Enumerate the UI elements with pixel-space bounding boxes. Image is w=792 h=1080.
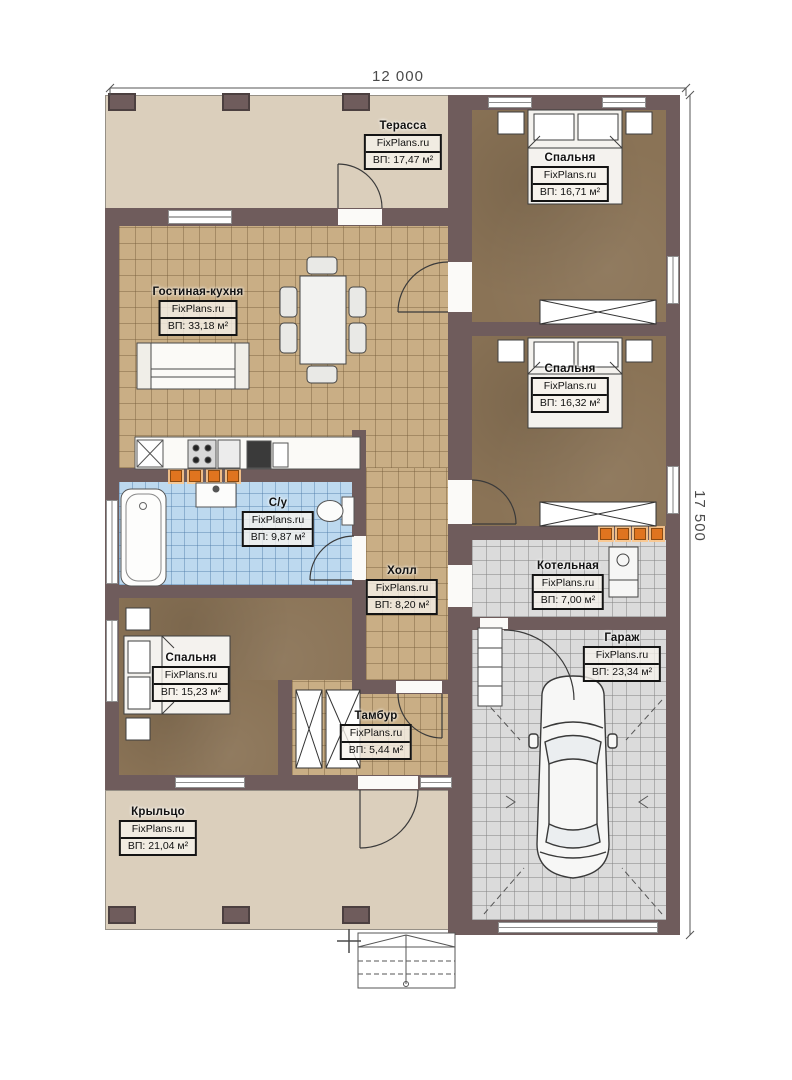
room-area: ВП: 16,71 м²: [533, 185, 607, 200]
watermark-label: FixPlans.ru: [533, 379, 607, 396]
vent-block: [600, 528, 612, 540]
door-opening: [396, 681, 442, 693]
bathroom-floor: [119, 482, 352, 585]
room-label-tambour: Тамбур FixPlans.ru ВП: 5,44 м²: [340, 710, 412, 760]
dimension-height-label: 17 500: [691, 490, 708, 542]
watermark-label: FixPlans.ru: [368, 581, 436, 598]
watermark-label: FixPlans.ru: [342, 726, 410, 743]
room-label-living: Гостиная-кухня FixPlans.ru ВП: 33,18 м²: [153, 286, 244, 336]
wall: [105, 585, 360, 598]
window: [420, 777, 452, 788]
room-area: ВП: 21,04 м²: [121, 839, 195, 854]
room-area: ВП: 23,34 м²: [585, 665, 659, 680]
room-name: Терасса: [364, 120, 442, 132]
room-label-bathroom: С/у FixPlans.ru ВП: 9,87 м²: [242, 497, 314, 547]
room-name: Гараж: [583, 632, 661, 644]
room-name: Холл: [366, 565, 438, 577]
bedroom1-floor: [472, 110, 666, 322]
window: [488, 97, 532, 108]
survey-cross: [337, 929, 361, 953]
room-label-hall: Холл FixPlans.ru ВП: 8,20 м²: [366, 565, 438, 615]
window: [106, 620, 118, 702]
room-area: ВП: 8,20 м²: [368, 598, 436, 613]
door-opening: [480, 618, 508, 629]
room-area: ВП: 17,47 м²: [366, 153, 440, 168]
vent-block: [208, 470, 220, 482]
room-label-bedroom2: Спальня FixPlans.ru ВП: 16,32 м²: [531, 363, 609, 413]
column: [108, 906, 136, 924]
room-name: С/у: [242, 497, 314, 509]
watermark-label: FixPlans.ru: [585, 648, 659, 665]
vent-block: [651, 528, 663, 540]
room-label-porch: Крыльцо FixPlans.ru ВП: 21,04 м²: [119, 806, 197, 856]
vent-block: [634, 528, 646, 540]
dimension-width-label: 12 000: [372, 68, 424, 85]
room-name: Котельная: [532, 560, 604, 572]
room-label-boiler: Котельная FixPlans.ru ВП: 7,00 м²: [532, 560, 604, 610]
room-name: Спальня: [152, 652, 230, 664]
room-area: ВП: 33,18 м²: [161, 319, 235, 334]
room-label-bedroom3: Спальня FixPlans.ru ВП: 15,23 м²: [152, 652, 230, 702]
wall: [666, 95, 680, 935]
wall: [352, 430, 366, 482]
room-name: Тамбур: [340, 710, 412, 722]
room-name: Спальня: [531, 152, 609, 164]
column: [222, 93, 250, 111]
watermark-label: FixPlans.ru: [121, 822, 195, 839]
window: [106, 500, 118, 584]
watermark-label: FixPlans.ru: [366, 136, 440, 153]
wall: [105, 208, 460, 226]
room-area: ВП: 16,32 м²: [533, 396, 607, 411]
column: [222, 906, 250, 924]
window: [667, 256, 679, 304]
wall: [119, 468, 366, 482]
vent-block: [189, 470, 201, 482]
room-label-bedroom1: Спальня FixPlans.ru ВП: 16,71 м²: [531, 152, 609, 202]
wall: [278, 680, 292, 778]
door-opening: [448, 262, 472, 312]
room-area: ВП: 15,23 м²: [154, 685, 228, 700]
watermark-label: FixPlans.ru: [244, 513, 312, 530]
watermark-label: FixPlans.ru: [161, 302, 235, 319]
vent-block: [617, 528, 629, 540]
door-opening: [358, 776, 418, 789]
vent-block: [227, 470, 239, 482]
garage-gate: [498, 922, 658, 933]
column: [108, 93, 136, 111]
wall: [105, 208, 119, 790]
watermark-label: FixPlans.ru: [534, 576, 602, 593]
window: [175, 777, 245, 788]
window: [667, 466, 679, 514]
room-label-garage: Гараж FixPlans.ru ВП: 23,34 м²: [583, 632, 661, 682]
living-floor: [119, 226, 448, 468]
room-area: ВП: 5,44 м²: [342, 743, 410, 758]
door-opening: [448, 565, 472, 607]
window: [602, 97, 646, 108]
floor-plan-canvas: Терасса FixPlans.ru ВП: 17,47 м² Спальня…: [0, 0, 792, 1080]
vent-block: [170, 470, 182, 482]
room-name: Спальня: [531, 363, 609, 375]
room-area: ВП: 7,00 м²: [534, 593, 602, 608]
door-opening: [338, 209, 382, 225]
wall: [472, 322, 666, 336]
watermark-label: FixPlans.ru: [533, 168, 607, 185]
door-opening: [352, 536, 366, 580]
room-name: Крыльцо: [119, 806, 197, 818]
window: [168, 210, 232, 224]
column: [342, 906, 370, 924]
room-name: Гостиная-кухня: [153, 286, 244, 298]
column: [342, 93, 370, 111]
watermark-label: FixPlans.ru: [154, 668, 228, 685]
door-opening: [448, 480, 472, 524]
room-label-terrace: Терасса FixPlans.ru ВП: 17,47 м²: [364, 120, 442, 170]
entrance-stairs: [358, 933, 455, 988]
room-area: ВП: 9,87 м²: [244, 530, 312, 545]
